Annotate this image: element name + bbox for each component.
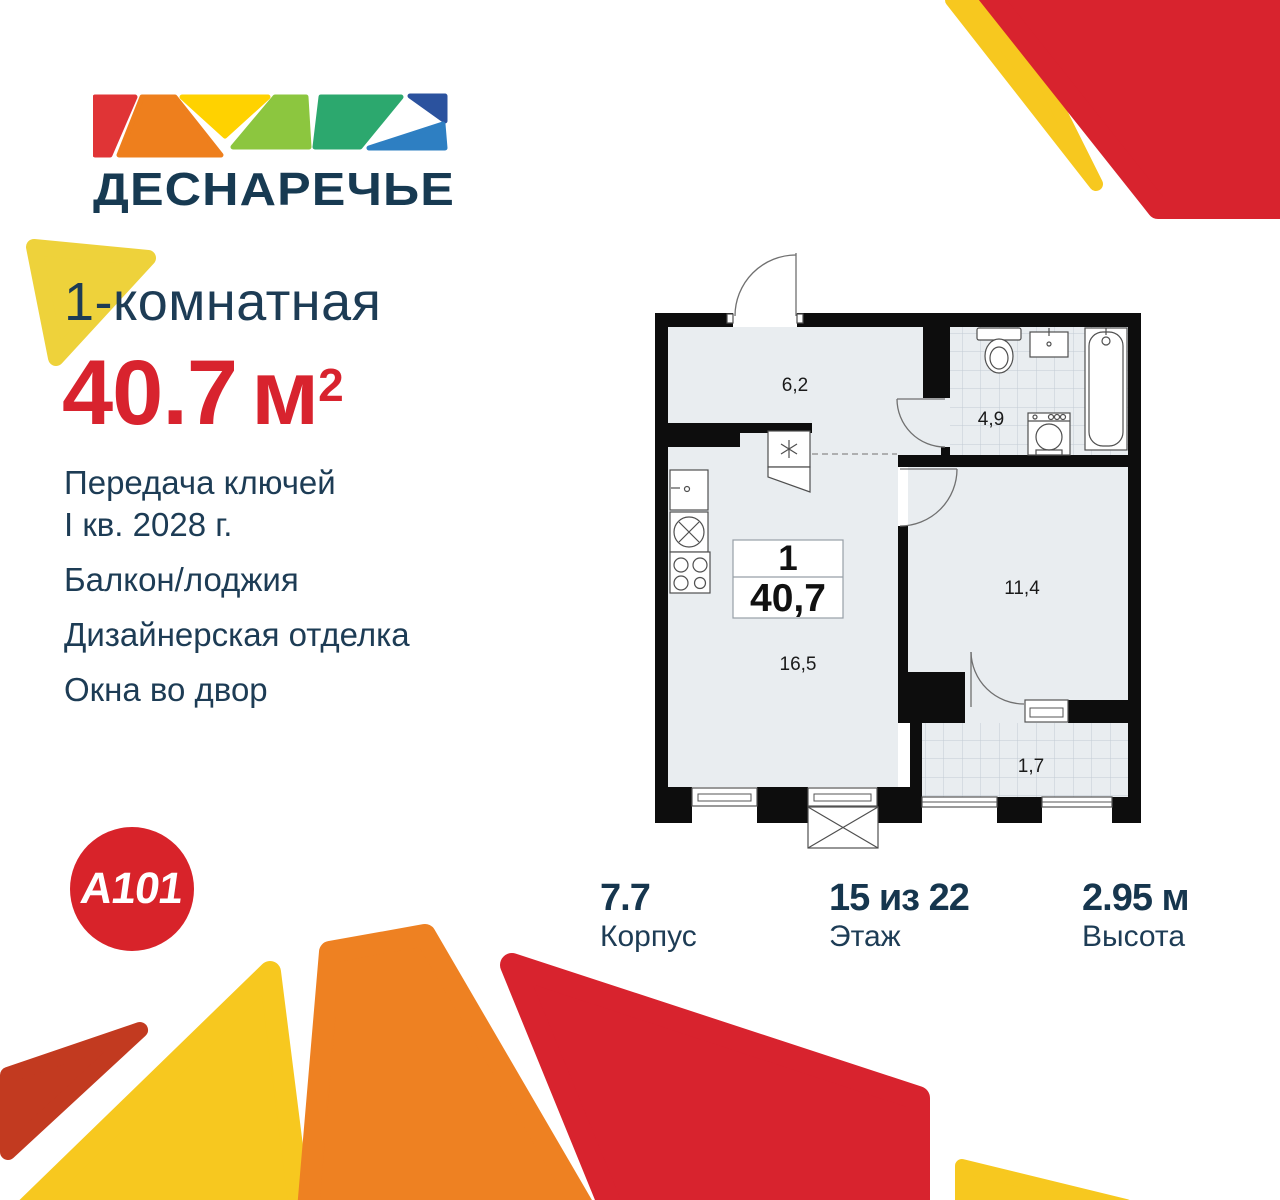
feature-line: I кв. 2028 г. (64, 504, 410, 546)
decor-yellow-small-bottom-right (962, 1166, 1126, 1200)
developer-logo-text: A101 (78, 864, 186, 914)
floor-label: Этаж (829, 920, 969, 954)
plan-summary-box: 1 40,7 (733, 539, 843, 620)
label-balcony-area: 1,7 (1018, 756, 1044, 777)
plan-total-area: 40,7 (750, 577, 826, 620)
brand-logo-shapes (95, 96, 445, 155)
height-label: Высота (1082, 920, 1189, 954)
label-bedroom-area: 11,4 (1004, 578, 1040, 599)
floor-value: 15 из 22 (829, 878, 969, 918)
page-title: 1-комнатная (64, 270, 381, 334)
feature-line: Окна во двор (64, 669, 410, 711)
brand-name: ДЕСНАРЕЧЬЕ (93, 163, 455, 213)
feature-windows: Окна во двор (64, 669, 410, 711)
label-kitchen-living-area: 16,5 (780, 654, 817, 675)
detail-height: 2.95 м Высота (1082, 878, 1189, 954)
label-hallway-area: 6,2 (782, 375, 808, 396)
feature-handover: Передача ключей I кв. 2028 г. (64, 462, 410, 546)
logo-shape-light-blue (369, 124, 445, 148)
feature-balcony: Балкон/лоджия (64, 559, 410, 601)
feature-line: Балкон/лоджия (64, 559, 410, 601)
area-value: 40.7 (62, 342, 237, 444)
building-value: 7.7 (600, 878, 697, 918)
floor-plan: 1 40,7 6,2 4,9 11,4 16,5 1,7 (640, 235, 1185, 855)
label-bathroom-area: 4,9 (978, 409, 1004, 430)
brand-logo: ДЕСНАРЕЧЬЕ (93, 88, 463, 213)
area-superscript: 2 (318, 359, 343, 411)
feature-list: Передача ключей I кв. 2028 г. Балкон/лод… (64, 462, 410, 724)
area-headline: 40.7м2 (62, 338, 343, 448)
plan-rooms-count: 1 (778, 539, 797, 578)
ac-unit (808, 807, 878, 848)
detail-building: 7.7 Корпус (600, 878, 697, 954)
decor-red-pentagon-bottom (512, 965, 918, 1200)
feature-finishing: Дизайнерская отделка (64, 614, 410, 656)
feature-line: Передача ключей (64, 462, 410, 504)
feature-line: Дизайнерская отделка (64, 614, 410, 656)
logo-shape-dark-blue (410, 96, 445, 121)
listing-card: ДЕСНАРЕЧЬЕ 1-комнатная 40.7м2 Передача к… (0, 0, 1280, 1200)
kitchen-fixtures (670, 470, 710, 593)
detail-floor: 15 из 22 Этаж (829, 878, 969, 954)
building-label: Корпус (600, 920, 697, 954)
area-unit: м (251, 342, 318, 444)
developer-logo: A101 (70, 827, 194, 951)
height-value: 2.95 м (1082, 878, 1189, 918)
